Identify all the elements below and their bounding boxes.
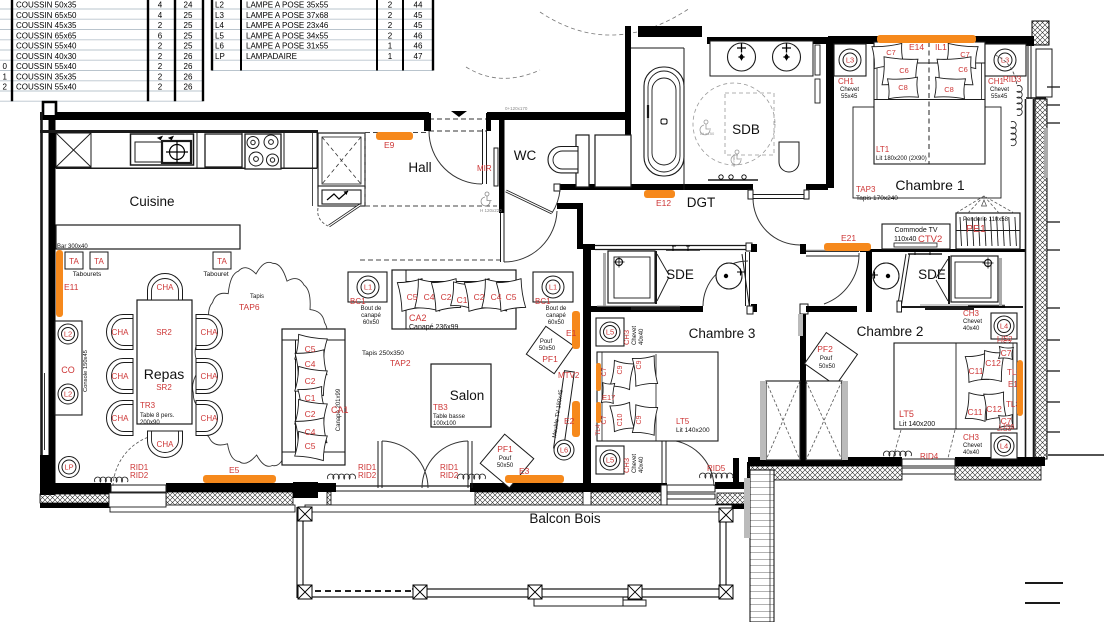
svg-text:Table basse: Table basse <box>433 414 466 420</box>
svg-text:1: 1 <box>3 73 8 82</box>
svg-text:L2: L2 <box>64 330 72 339</box>
svg-text:Tapis 170x240: Tapis 170x240 <box>856 195 898 202</box>
svg-text:Hall: Hall <box>408 160 431 175</box>
svg-text:E17: E17 <box>602 393 615 402</box>
svg-text:LP: LP <box>64 463 73 472</box>
svg-text:0+120x170: 0+120x170 <box>505 106 528 111</box>
svg-text:2: 2 <box>158 21 163 30</box>
svg-text:46: 46 <box>414 42 423 51</box>
svg-text:2: 2 <box>158 62 163 71</box>
svg-text:canapé: canapé <box>361 313 381 319</box>
svg-text:CHA: CHA <box>157 283 175 292</box>
svg-text:C5: C5 <box>305 441 316 451</box>
svg-text:TA: TA <box>69 257 79 266</box>
svg-text:2: 2 <box>158 73 163 82</box>
svg-text:2: 2 <box>388 1 393 10</box>
svg-text:E5: E5 <box>229 465 240 475</box>
svg-text:SDB: SDB <box>732 122 760 137</box>
svg-text:Chevet: Chevet <box>632 454 638 473</box>
svg-text:C2: C2 <box>441 292 452 302</box>
svg-text:L6: L6 <box>560 446 568 455</box>
svg-text:SR2: SR2 <box>156 328 172 337</box>
svg-text:MIR: MIR <box>477 164 492 173</box>
svg-text:25: 25 <box>184 21 193 30</box>
svg-text:L2: L2 <box>215 1 224 10</box>
svg-text:40x40: 40x40 <box>963 326 980 332</box>
svg-text:Tabourets: Tabourets <box>73 271 102 278</box>
svg-text:24: 24 <box>184 1 193 10</box>
svg-text:Chambre 3: Chambre 3 <box>689 326 756 341</box>
svg-text:60x50: 60x50 <box>548 320 565 326</box>
svg-text:CH1: CH1 <box>838 77 855 86</box>
svg-text:25: 25 <box>184 42 193 51</box>
svg-text:100x100: 100x100 <box>433 421 457 427</box>
svg-text:2: 2 <box>158 83 163 92</box>
svg-text:2: 2 <box>388 21 393 30</box>
svg-text:COUSSIN 45x35: COUSSIN 45x35 <box>16 21 77 30</box>
svg-text:L4: L4 <box>1000 442 1008 451</box>
svg-text:PF2: PF2 <box>817 344 833 354</box>
svg-text:1: 1 <box>388 52 393 61</box>
svg-text:db rails: db rails <box>731 154 736 167</box>
svg-text:50x50: 50x50 <box>539 346 556 352</box>
svg-text:SR2: SR2 <box>156 383 172 392</box>
svg-text:C6: C6 <box>899 66 909 75</box>
svg-text:CA1: CA1 <box>331 405 349 415</box>
svg-text:C6: C6 <box>958 65 968 74</box>
svg-text:COUSSIN 65x65: COUSSIN 65x65 <box>16 32 77 41</box>
svg-text:26: 26 <box>184 52 193 61</box>
svg-text:C7: C7 <box>1001 348 1012 358</box>
svg-text:TB3: TB3 <box>433 403 448 412</box>
svg-text:E12: E12 <box>656 198 671 208</box>
svg-text:40x40: 40x40 <box>639 456 645 473</box>
svg-text:CO: CO <box>61 365 75 375</box>
svg-text:C1: C1 <box>457 295 468 305</box>
svg-text:C4: C4 <box>305 427 316 437</box>
svg-text:2: 2 <box>158 42 163 51</box>
svg-text:TL4: TL4 <box>595 424 602 436</box>
svg-text:C5: C5 <box>506 292 517 302</box>
svg-text:LT5: LT5 <box>676 417 690 426</box>
svg-text:L3: L3 <box>1001 56 1009 65</box>
svg-text:45: 45 <box>414 11 423 20</box>
svg-text:L5: L5 <box>606 328 614 337</box>
svg-text:COUSSIN 55x40: COUSSIN 55x40 <box>16 62 77 71</box>
svg-text:CH3: CH3 <box>622 458 631 473</box>
svg-text:Bar 300x40: Bar 300x40 <box>57 244 88 250</box>
svg-text:TA: TA <box>217 257 227 266</box>
svg-text:2: 2 <box>158 52 163 61</box>
svg-text:E1: E1 <box>566 328 577 338</box>
svg-text:47: 47 <box>414 52 423 61</box>
svg-text:50x50: 50x50 <box>819 364 836 370</box>
svg-text:Bout de: Bout de <box>546 306 567 312</box>
svg-text:RID4: RID4 <box>920 452 939 461</box>
svg-text:WC: WC <box>514 148 537 163</box>
svg-text:PF1: PF1 <box>497 444 513 454</box>
svg-text:TA: TA <box>94 257 104 266</box>
svg-text:RID3: RID3 <box>1003 75 1022 84</box>
svg-text:C5: C5 <box>305 344 316 354</box>
svg-text:LIS2: LIS2 <box>997 334 1012 343</box>
svg-text:6: 6 <box>158 32 163 41</box>
svg-text:26: 26 <box>184 83 193 92</box>
svg-text:COUSSIN 65x50: COUSSIN 65x50 <box>16 11 77 20</box>
svg-text:C8: C8 <box>944 85 954 94</box>
svg-text:TR3: TR3 <box>140 401 156 410</box>
svg-text:60x50: 60x50 <box>363 320 380 326</box>
svg-text:2: 2 <box>388 11 393 20</box>
svg-text:C7: C7 <box>886 48 896 57</box>
svg-text:LAMPE A POSE 23x46: LAMPE A POSE 23x46 <box>246 21 329 30</box>
svg-text:55x45: 55x45 <box>991 94 1008 100</box>
svg-text:C2: C2 <box>305 376 316 386</box>
svg-text:1: 1 <box>388 42 393 51</box>
svg-text:H 120x220: H 120x220 <box>480 208 502 213</box>
svg-text:CH3: CH3 <box>622 330 631 345</box>
svg-text:Salon: Salon <box>450 388 485 403</box>
svg-text:C4: C4 <box>491 292 502 302</box>
svg-text:L4: L4 <box>1000 322 1008 331</box>
svg-text:E14: E14 <box>909 42 924 52</box>
svg-text:Cuisine: Cuisine <box>129 194 174 209</box>
svg-text:Chevet: Chevet <box>963 319 982 325</box>
svg-text:L5: L5 <box>215 32 224 41</box>
svg-text:Dt ø150: Dt ø150 <box>700 131 715 136</box>
svg-text:Tabouret: Tabouret <box>203 271 228 278</box>
svg-text:E21: E21 <box>841 233 856 243</box>
svg-text:C2: C2 <box>474 292 485 302</box>
svg-text:4: 4 <box>158 1 163 10</box>
svg-text:45: 45 <box>414 21 423 30</box>
svg-text:Tapis: Tapis <box>250 294 264 300</box>
svg-text:Lit 180x200 (2X90): Lit 180x200 (2X90) <box>876 156 927 162</box>
svg-text:C4: C4 <box>305 359 316 369</box>
svg-text:IL1: IL1 <box>935 42 947 52</box>
svg-text:50x50: 50x50 <box>497 463 514 469</box>
svg-text:E2: E2 <box>564 416 575 426</box>
svg-text:C1: C1 <box>305 393 316 403</box>
svg-text:BC1: BC1 <box>535 297 551 306</box>
svg-text:25: 25 <box>184 32 193 41</box>
svg-text:COUSSIN 55x40: COUSSIN 55x40 <box>16 42 77 51</box>
svg-text:CHA: CHA <box>112 414 130 423</box>
svg-text:C2: C2 <box>305 409 316 419</box>
svg-text:LAMPE A POSE 35x55: LAMPE A POSE 35x55 <box>246 1 329 10</box>
svg-text:RID5: RID5 <box>707 464 726 473</box>
svg-text:CH3: CH3 <box>963 309 980 318</box>
svg-text:C10: C10 <box>617 413 624 426</box>
svg-text:C11: C11 <box>969 366 984 376</box>
svg-text:L1: L1 <box>549 283 557 292</box>
svg-text:0: 0 <box>3 62 8 71</box>
svg-text:40x40: 40x40 <box>639 328 645 345</box>
svg-text:L2: L2 <box>64 390 72 399</box>
svg-text:44: 44 <box>414 1 423 10</box>
svg-text:C12: C12 <box>985 358 1001 368</box>
svg-text:RID2: RID2 <box>440 471 459 480</box>
svg-text:Repas: Repas <box>144 366 184 382</box>
svg-text:Bout de: Bout de <box>361 306 382 312</box>
svg-text:TAP2: TAP2 <box>390 358 411 368</box>
svg-text:2: 2 <box>3 83 8 92</box>
svg-text:Chevet: Chevet <box>963 443 982 449</box>
svg-text:Chambre 2: Chambre 2 <box>857 324 924 339</box>
svg-text:CHA: CHA <box>112 328 130 337</box>
svg-text:C11: C11 <box>968 407 983 417</box>
svg-text:COUSSIN 50x35: COUSSIN 50x35 <box>16 1 77 10</box>
svg-text:PF1: PF1 <box>542 354 558 364</box>
svg-text:PE1: PE1 <box>966 223 986 235</box>
svg-text:L5: L5 <box>606 456 614 465</box>
svg-text:L4: L4 <box>215 21 224 30</box>
svg-text:L6: L6 <box>215 42 224 51</box>
svg-text:Chevet: Chevet <box>840 87 859 93</box>
svg-text:RID2: RID2 <box>130 471 149 480</box>
svg-text:Pouf: Pouf <box>540 339 553 345</box>
svg-text:E9: E9 <box>384 140 395 150</box>
svg-text:Console 150x45: Console 150x45 <box>83 350 89 392</box>
svg-text:LAMPE A POSE 31x55: LAMPE A POSE 31x55 <box>246 42 329 51</box>
svg-text:CH3: CH3 <box>963 433 980 442</box>
svg-text:CA2: CA2 <box>409 313 427 323</box>
svg-text:MTV2: MTV2 <box>558 371 580 380</box>
svg-text:C5: C5 <box>407 292 418 302</box>
svg-text:C12: C12 <box>986 404 1002 414</box>
svg-text:LAMPE A POSE 37x68: LAMPE A POSE 37x68 <box>246 11 329 20</box>
svg-text:Canapé 236x99: Canapé 236x99 <box>409 324 459 331</box>
svg-text:Pouf: Pouf <box>499 456 512 462</box>
svg-text:C9: C9 <box>636 415 643 424</box>
svg-text:LT1: LT1 <box>876 145 890 154</box>
svg-text:BC1: BC1 <box>350 297 366 306</box>
svg-text:COUSSIN 40x30: COUSSIN 40x30 <box>16 52 77 61</box>
svg-text:Commode TV: Commode TV <box>894 227 937 234</box>
svg-text:C8: C8 <box>898 83 908 92</box>
svg-text:C7: C7 <box>601 415 608 424</box>
svg-text:Chevet: Chevet <box>990 87 1009 93</box>
svg-text:Lit 140x200: Lit 140x200 <box>899 421 935 428</box>
svg-text:25: 25 <box>184 11 193 20</box>
svg-text:TAP3: TAP3 <box>856 185 876 194</box>
svg-text:110x40: 110x40 <box>894 236 917 243</box>
svg-text:26: 26 <box>184 73 193 82</box>
svg-text:Tapis 250x350: Tapis 250x350 <box>362 350 404 357</box>
svg-text:40x40: 40x40 <box>963 450 980 456</box>
svg-text:Balcon Bois: Balcon Bois <box>529 511 601 526</box>
svg-text:2: 2 <box>388 32 393 41</box>
svg-text:TAP6: TAP6 <box>239 302 260 312</box>
svg-text:C7: C7 <box>960 50 970 59</box>
svg-text:E3: E3 <box>519 466 530 476</box>
svg-text:LAMPADAIRE: LAMPADAIRE <box>246 52 297 61</box>
svg-text:C4: C4 <box>424 292 435 302</box>
svg-text:200x90: 200x90 <box>140 420 160 426</box>
svg-text:L3: L3 <box>215 11 224 20</box>
svg-text:55x45: 55x45 <box>841 94 858 100</box>
svg-text:Lit 140x200: Lit 140x200 <box>676 427 710 434</box>
svg-text:C9: C9 <box>617 365 624 374</box>
svg-text:CHA: CHA <box>112 372 130 381</box>
svg-text:canapé: canapé <box>546 313 566 319</box>
svg-text:LP: LP <box>215 52 225 61</box>
svg-text:DGT: DGT <box>687 195 716 210</box>
svg-text:4: 4 <box>158 11 163 20</box>
svg-text:RID2: RID2 <box>358 471 377 480</box>
svg-text:E11: E11 <box>64 282 79 292</box>
svg-text:LAMPE A POSE 34x55: LAMPE A POSE 34x55 <box>246 32 329 41</box>
svg-text:L1: L1 <box>364 283 372 292</box>
svg-text:C9: C9 <box>636 360 643 369</box>
svg-text:CHA: CHA <box>157 440 175 449</box>
svg-text:COUSSIN 35x35: COUSSIN 35x35 <box>16 73 77 82</box>
svg-text:Chambre 1: Chambre 1 <box>895 177 964 193</box>
svg-text:Pouf: Pouf <box>820 356 833 362</box>
svg-text:Chevet: Chevet <box>632 326 638 345</box>
svg-text:Table 8 pers.: Table 8 pers. <box>140 413 175 419</box>
svg-text:L3: L3 <box>846 56 854 65</box>
svg-text:COUSSIN 55x40: COUSSIN 55x40 <box>16 83 77 92</box>
svg-text:26: 26 <box>184 62 193 71</box>
svg-text:CHA: CHA <box>201 372 219 381</box>
svg-text:LIS6: LIS6 <box>999 422 1014 431</box>
svg-text:LT5: LT5 <box>899 409 914 419</box>
svg-text:CHA: CHA <box>201 328 219 337</box>
svg-text:SDE: SDE <box>666 267 694 282</box>
svg-text:C7: C7 <box>601 367 608 376</box>
svg-text:CHA: CHA <box>201 414 219 423</box>
svg-text:46: 46 <box>414 32 423 41</box>
